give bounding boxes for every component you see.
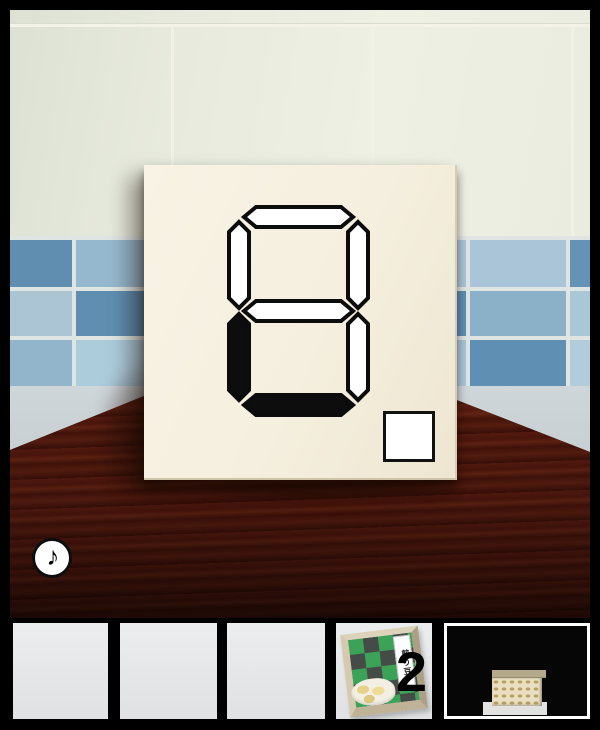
game-screen: ♪ 煎り豆 2 [0, 0, 600, 730]
seven-segment-display [224, 202, 373, 420]
wall-tile [456, 291, 466, 336]
item-count-badge: 2 [396, 644, 427, 700]
wall-tile [76, 291, 150, 336]
wall-tile [10, 291, 72, 336]
inventory-slot-3[interactable] [227, 623, 325, 719]
inventory-bar: 煎り豆 2 [0, 618, 600, 730]
wall-tile [570, 340, 590, 386]
wall-tile [10, 240, 72, 287]
inventory-slot-1[interactable] [13, 623, 108, 719]
inventory-slot-2[interactable] [120, 623, 217, 719]
beans-graphic [350, 675, 397, 707]
white-square-button[interactable] [383, 411, 435, 462]
sound-toggle-button[interactable]: ♪ [32, 538, 72, 578]
bean-box-rim [492, 670, 546, 678]
wall-tile [470, 291, 566, 336]
inventory-slot-4[interactable]: 煎り豆 2 [336, 623, 432, 719]
bean-box-item[interactable] [492, 670, 542, 706]
wall-tile [456, 240, 466, 287]
wall-tile [570, 291, 590, 336]
music-note-icon: ♪ [47, 543, 60, 569]
inventory-slot-5-item-view[interactable] [444, 623, 590, 719]
tile-grout-line [571, 26, 574, 236]
wall-tile [76, 240, 150, 287]
display-card[interactable] [144, 165, 457, 480]
wall-tile [570, 240, 590, 287]
wall-tile [456, 340, 466, 386]
wall-tile [470, 240, 566, 287]
bean-box-beans [492, 678, 542, 706]
wall-tile [10, 340, 72, 386]
room-scene[interactable]: ♪ [10, 10, 590, 618]
tile-grout-line [10, 23, 590, 27]
wall-tile [470, 340, 566, 386]
